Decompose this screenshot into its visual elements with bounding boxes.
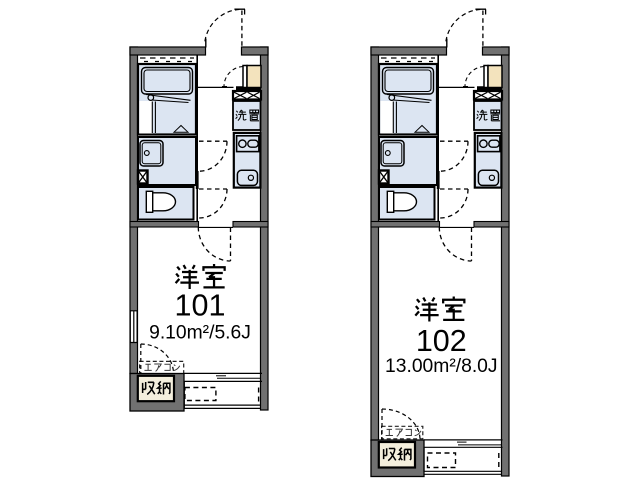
svg-text:9.10m²/5.6J: 9.10m²/5.6J [149,323,251,344]
svg-text:13.00m²/8.0J: 13.00m²/8.0J [385,356,498,377]
svg-text:102: 102 [416,324,467,358]
svg-text:101: 101 [175,289,226,323]
